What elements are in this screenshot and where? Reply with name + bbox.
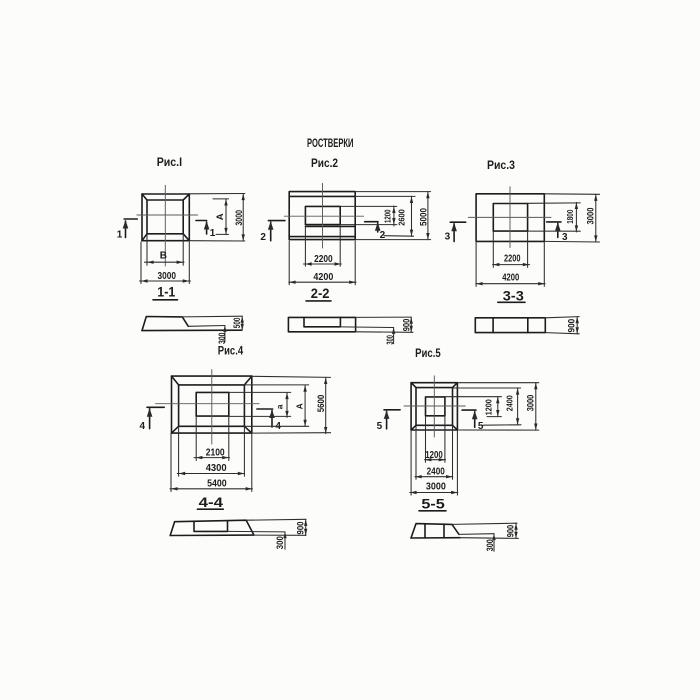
svg-text:300: 300 — [275, 536, 286, 549]
svg-text:2100: 2100 — [206, 448, 225, 459]
svg-text:2400: 2400 — [504, 395, 514, 411]
svg-text:900: 900 — [567, 319, 578, 333]
svg-text:900: 900 — [296, 522, 307, 535]
svg-text:1200: 1200 — [382, 209, 392, 223]
svg-text:А: А — [294, 403, 304, 409]
svg-text:5400: 5400 — [207, 479, 227, 490]
svg-text:3-3: 3-3 — [503, 287, 524, 303]
svg-text:3000: 3000 — [525, 395, 536, 412]
svg-text:1200: 1200 — [425, 450, 443, 461]
svg-text:3: 3 — [445, 232, 451, 243]
svg-text:900: 900 — [506, 525, 517, 537]
svg-text:1800: 1800 — [565, 209, 575, 223]
svg-text:РОСТВЕРКИ: РОСТВЕРКИ — [307, 136, 354, 150]
svg-text:3000: 3000 — [234, 210, 245, 226]
svg-text:3000: 3000 — [426, 482, 446, 493]
svg-text:300: 300 — [217, 333, 228, 345]
svg-text:а: а — [274, 404, 284, 409]
svg-text:Рис.5: Рис.5 — [415, 346, 441, 360]
svg-text:300: 300 — [385, 335, 396, 345]
svg-text:4-4: 4-4 — [199, 494, 224, 510]
svg-text:900: 900 — [402, 319, 413, 332]
svg-text:Рис.4: Рис.4 — [218, 344, 244, 358]
svg-text:5: 5 — [377, 421, 383, 432]
svg-text:4300: 4300 — [206, 463, 227, 474]
svg-text:4: 4 — [140, 421, 146, 432]
svg-text:2200: 2200 — [314, 254, 333, 265]
svg-text:4200: 4200 — [502, 272, 519, 283]
svg-text:В: В — [160, 250, 167, 261]
svg-text:1200: 1200 — [484, 399, 494, 415]
svg-text:А: А — [215, 213, 226, 220]
svg-text:Рис.3: Рис.3 — [487, 158, 515, 172]
svg-text:1: 1 — [117, 230, 123, 241]
svg-text:2600: 2600 — [397, 209, 407, 226]
svg-text:3000: 3000 — [585, 208, 596, 225]
svg-text:Рис.I: Рис.I — [157, 155, 182, 169]
svg-text:1: 1 — [210, 228, 216, 239]
svg-text:4200: 4200 — [313, 272, 333, 283]
svg-text:2: 2 — [260, 232, 266, 243]
svg-text:3000: 3000 — [158, 271, 177, 282]
svg-text:2-2: 2-2 — [311, 285, 330, 301]
svg-text:300: 300 — [485, 539, 496, 551]
svg-text:2200: 2200 — [504, 253, 521, 264]
svg-text:Рис.2: Рис.2 — [311, 156, 338, 170]
svg-text:500: 500 — [232, 318, 243, 329]
svg-text:2400: 2400 — [427, 466, 446, 477]
svg-text:5600: 5600 — [316, 395, 327, 413]
svg-text:1-1: 1-1 — [157, 284, 175, 300]
svg-text:5-5: 5-5 — [421, 495, 445, 511]
svg-text:5000: 5000 — [419, 208, 430, 226]
